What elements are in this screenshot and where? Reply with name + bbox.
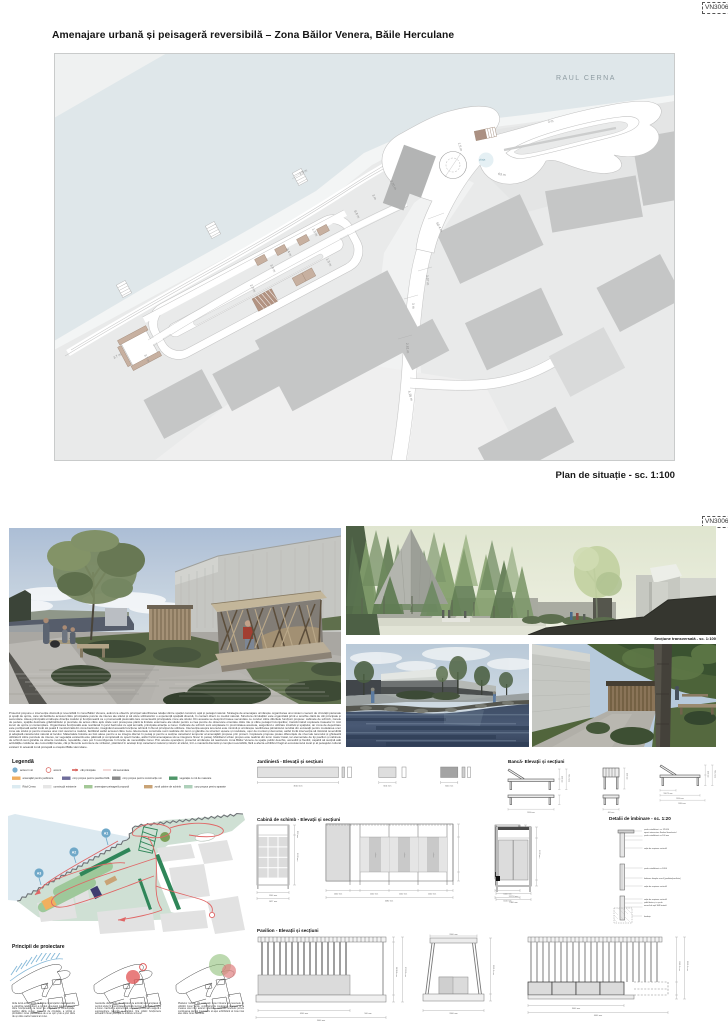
svg-text:solție de susținere verticală: solție de susținere verticală — [644, 847, 668, 850]
svg-text:3000 mm: 3000 mm — [572, 1008, 581, 1010]
svg-text:1117.6 mm: 1117.6 mm — [509, 896, 519, 898]
svg-text:corp propus pentru aparate: corp propus pentru aparate — [195, 785, 227, 789]
svg-text:1200 mm: 1200 mm — [399, 894, 408, 896]
svg-text:2641.6 mm: 2641.6 mm — [686, 961, 688, 971]
svg-text:450 mm: 450 mm — [561, 776, 563, 783]
svg-text:corp propus pentru construcție: corp propus pentru construcție noi — [123, 776, 163, 780]
svg-text:construcții existente: construcții existente — [54, 785, 77, 789]
svg-text:795.3 mm: 795.3 mm — [714, 770, 716, 778]
svg-text:1500 mm: 1500 mm — [269, 895, 278, 897]
svg-text:3 m: 3 m — [411, 303, 415, 309]
svg-text:1300 mm: 1300 mm — [509, 902, 518, 904]
svg-text:A1: A1 — [104, 831, 109, 835]
svg-text:450 mm: 450 mm — [707, 771, 709, 778]
svg-text:zonă cabine de schimb: zonă cabine de schimb — [155, 785, 182, 789]
svg-text:cabina: cabina — [403, 853, 405, 858]
svg-text:1000 mm: 1000 mm — [334, 894, 343, 896]
svg-text:cabina: cabina — [432, 853, 434, 858]
svg-text:2000 mm: 2000 mm — [449, 934, 458, 936]
svg-text:căi principale: căi principale — [81, 768, 97, 772]
svg-text:A3: A3 — [37, 871, 42, 875]
svg-text:600 mm: 600 mm — [383, 786, 391, 788]
svg-text:500 mm: 500 mm — [364, 1013, 372, 1015]
svg-text:2641.6 mm: 2641.6 mm — [492, 965, 494, 975]
svg-text:ancoră de oțel 16/8 betonă: ancoră de oțel 16/8 betonă — [644, 904, 667, 907]
svg-text:3000 mm: 3000 mm — [293, 786, 302, 788]
svg-text:vegetație cu rol de mascare: vegetație cu rol de mascare — [180, 776, 212, 780]
svg-text:795.3 mm: 795.3 mm — [568, 774, 570, 782]
svg-text:1860 mm: 1860 mm — [678, 803, 686, 805]
svg-text:500 mm: 500 mm — [296, 831, 298, 839]
svg-text:corp propus pentru pavilion/zi: corp propus pentru pavilion/zidă — [73, 776, 110, 780]
svg-text:2000 mm: 2000 mm — [449, 1013, 458, 1015]
svg-text:1981.2 mm: 1981.2 mm — [678, 961, 680, 971]
svg-text:4000 mm: 4000 mm — [594, 1015, 603, 1017]
svg-text:solție de susținere verticală: solție de susținere verticală — [644, 898, 668, 901]
svg-text:558.75 mm: 558.75 mm — [664, 793, 673, 795]
svg-text:A2: A2 — [72, 850, 77, 854]
svg-text:Râul Cerna: Râul Cerna — [23, 785, 37, 789]
svg-text:solție de susținere verticală: solție de susținere verticală — [644, 885, 668, 888]
svg-text:accent: accent — [54, 768, 62, 772]
svg-text:2438.4 mm: 2438.4 mm — [395, 967, 397, 977]
svg-text:fundație: fundație — [644, 915, 651, 918]
svg-text:1800 mm: 1800 mm — [676, 798, 684, 800]
svg-text:4500 mm: 4500 mm — [300, 1013, 309, 1015]
svg-text:RAUL CERNA: RAUL CERNA — [556, 75, 616, 82]
svg-text:2100 mm: 2100 mm — [538, 850, 540, 859]
svg-text:șurub autofiletant- cu 50/50: șurub autofiletant- cu 50/50 — [644, 867, 667, 870]
svg-text:2100 mm: 2100 mm — [296, 853, 298, 862]
svg-text:șurub autofiletant - cu 7/10/1: șurub autofiletant - cu 7/10/10 — [644, 828, 669, 831]
svg-text:cabina: cabina — [374, 853, 376, 858]
svg-text:400 mm: 400 mm — [608, 812, 615, 814]
svg-text:raport intersectare lămânul le: raport intersectare lămânul lemn/metal — [644, 831, 677, 834]
svg-text:5000 mm: 5000 mm — [317, 1020, 326, 1022]
svg-text:1200 mm: 1200 mm — [370, 894, 379, 896]
svg-text:1800 mm: 1800 mm — [527, 812, 535, 814]
svg-text:2743.2 mm: 2743.2 mm — [404, 967, 406, 977]
svg-text:amenajare peisageră propusă: amenajare peisageră propusă — [95, 785, 130, 789]
svg-text:plaja: plaja — [479, 158, 486, 162]
svg-text:șurub autofiletant- ax 100 mm: șurub autofiletant- ax 100 mm — [644, 834, 669, 837]
svg-text:amenajări pentru jardiniere: amenajări pentru jardiniere — [23, 776, 54, 780]
svg-text:șaibă beton și o șurub: șaibă beton și o șurub — [644, 901, 663, 904]
svg-text:1200 mm: 1200 mm — [428, 894, 437, 896]
svg-text:5080 mm: 5080 mm — [385, 901, 394, 903]
svg-text:acces în sit: acces în sit — [20, 768, 33, 772]
svg-text:600 mm: 600 mm — [445, 786, 453, 788]
svg-text:căi secundare: căi secundare — [113, 768, 130, 772]
svg-text:îmbinare tâmplar ească (jumăta: îmbinare tâmplar ească (jumătate/jumătat… — [643, 877, 681, 880]
svg-text:450 mm: 450 mm — [626, 773, 628, 780]
svg-text:1627 mm: 1627 mm — [269, 901, 278, 903]
